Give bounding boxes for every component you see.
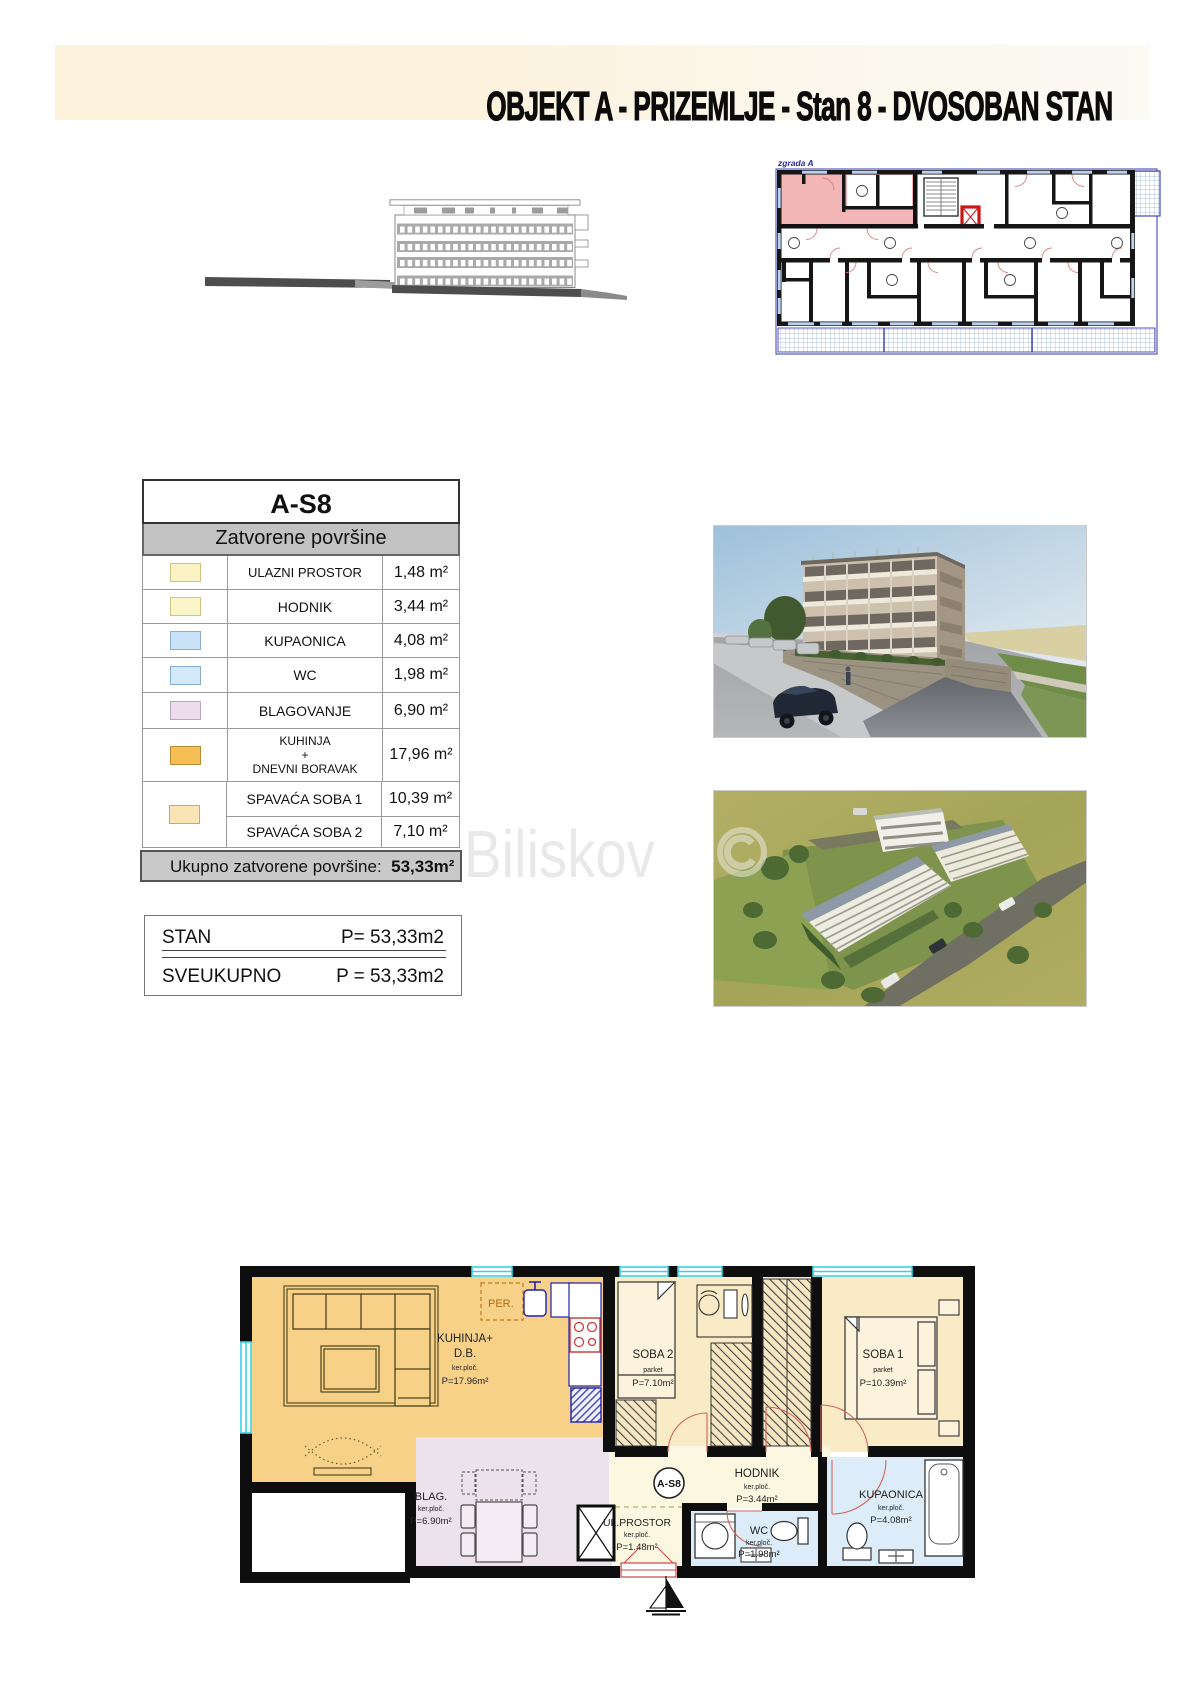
svg-text:parket: parket [643, 1367, 663, 1374]
svg-text:P=1.98m²: P=1.98m² [738, 1549, 779, 1560]
svg-text:KUHINJA+: KUHINJA+ [437, 1333, 493, 1345]
svg-text:HODNIK: HODNIK [735, 1468, 780, 1480]
svg-text:P=17.96m²: P=17.96m² [442, 1376, 489, 1387]
svg-text:ker.ploč.: ker.ploč. [744, 1484, 770, 1491]
svg-text:SOBA 2: SOBA 2 [633, 1349, 674, 1361]
svg-text:WC: WC [750, 1525, 768, 1537]
svg-text:zgrada A: zgrada A [777, 158, 814, 168]
svg-text:P=10.39m²: P=10.39m² [860, 1378, 907, 1389]
svg-text:ker.ploč.: ker.ploč. [746, 1540, 772, 1547]
svg-text:P=3.44m²: P=3.44m² [736, 1494, 777, 1505]
svg-text:BLAG.: BLAG. [415, 1491, 447, 1503]
svg-text:parket: parket [873, 1367, 893, 1374]
svg-text:P=6.90m²: P=6.90m² [410, 1516, 451, 1527]
svg-text:D.B.: D.B. [454, 1348, 476, 1360]
svg-text:SOBA 1: SOBA 1 [863, 1349, 904, 1361]
svg-text:ker.ploč.: ker.ploč. [624, 1532, 650, 1539]
svg-text:P=1.48m²: P=1.48m² [616, 1542, 657, 1553]
svg-text:ker.ploč.: ker.ploč. [452, 1365, 478, 1372]
svg-text:A-S8: A-S8 [657, 1478, 681, 1490]
svg-text:PER.: PER. [488, 1298, 514, 1310]
svg-text:KUPAONICA: KUPAONICA [859, 1489, 924, 1501]
svg-text:P=4.08m²: P=4.08m² [870, 1515, 911, 1526]
svg-text:UL.PROSTOR: UL.PROSTOR [603, 1517, 671, 1529]
svg-text:ker.ploč.: ker.ploč. [418, 1506, 444, 1513]
svg-text:P=7.10m²: P=7.10m² [632, 1378, 673, 1389]
svg-text:ker.ploč.: ker.ploč. [878, 1505, 904, 1512]
